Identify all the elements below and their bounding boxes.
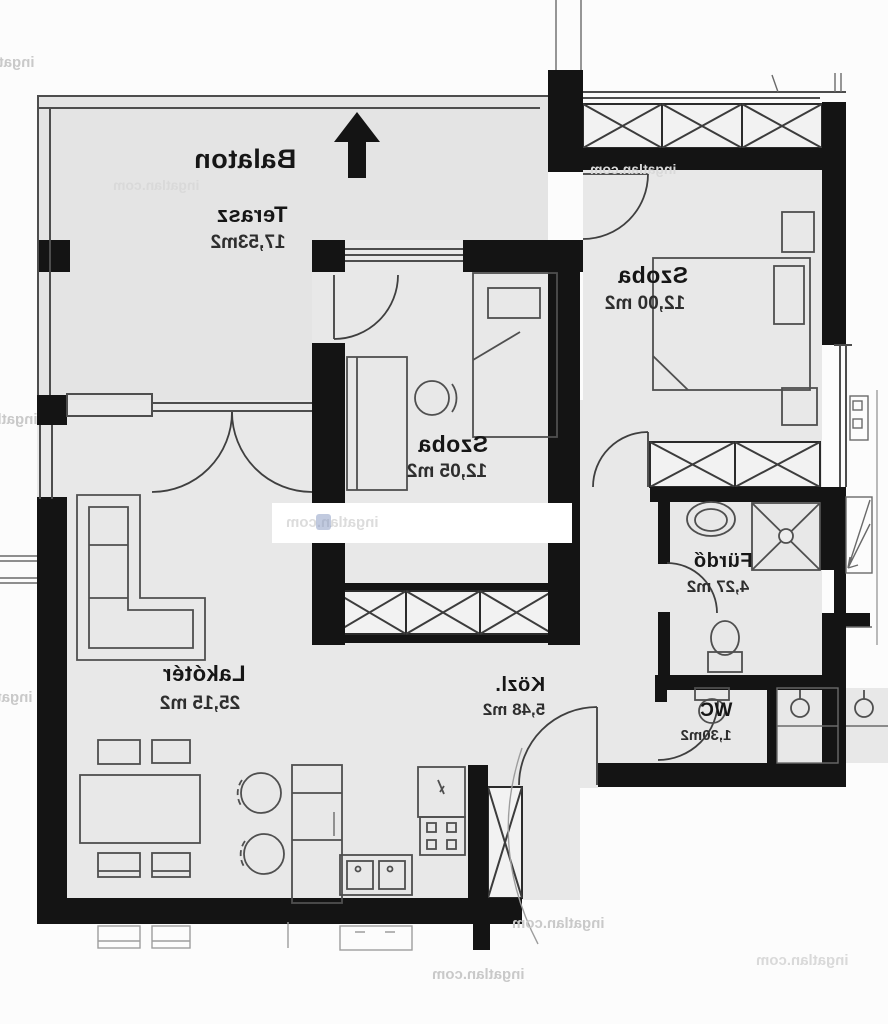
watermark-band: ingatlan.com bbox=[272, 503, 572, 543]
watermark: ingatlan.com bbox=[432, 967, 525, 982]
room-label-kozl: Közl. bbox=[460, 675, 580, 695]
watermark: ingatlan.com bbox=[286, 515, 379, 530]
floorplan-page: Balaton Terasz 17,53m2 Szoba 12,00 m2 Sz… bbox=[0, 0, 888, 1024]
compass-label: Balaton bbox=[165, 146, 325, 173]
room-area-wc: 1,30m2 bbox=[656, 728, 756, 743]
watermark: ingatlan.com bbox=[0, 55, 35, 70]
watermark: ingatlan.com bbox=[512, 916, 605, 931]
room-label-szoba-middle: Szoba bbox=[393, 433, 513, 456]
room-area-szoba-right: 12,00 m2 bbox=[585, 294, 705, 313]
room-label-wc: WC bbox=[666, 701, 766, 720]
watermark: ingatlan.com bbox=[590, 162, 676, 176]
room-area-lakoter: 25,15 m2 bbox=[135, 694, 265, 713]
watermark-logo-icon bbox=[316, 514, 331, 530]
room-area-terasz: 17,53m2 bbox=[188, 233, 308, 252]
room-label-lakoter: Lakótér bbox=[139, 663, 269, 685]
room-label-furdo: Fürdő bbox=[663, 551, 783, 571]
watermark: ingatlan.com bbox=[0, 412, 38, 427]
watermark: ingatlan.com bbox=[113, 178, 199, 192]
room-area-kozl: 5,48 m2 bbox=[454, 701, 574, 718]
room-label-szoba-right: Szoba bbox=[593, 264, 713, 287]
room-area-furdo: 4,27 m2 bbox=[658, 578, 778, 595]
watermark: ingatlan.com bbox=[756, 953, 849, 968]
watermark: ingatlan.com bbox=[0, 690, 33, 705]
room-label-terasz: Terasz bbox=[192, 204, 312, 226]
room-area-szoba-middle: 12,05 m2 bbox=[387, 462, 507, 481]
